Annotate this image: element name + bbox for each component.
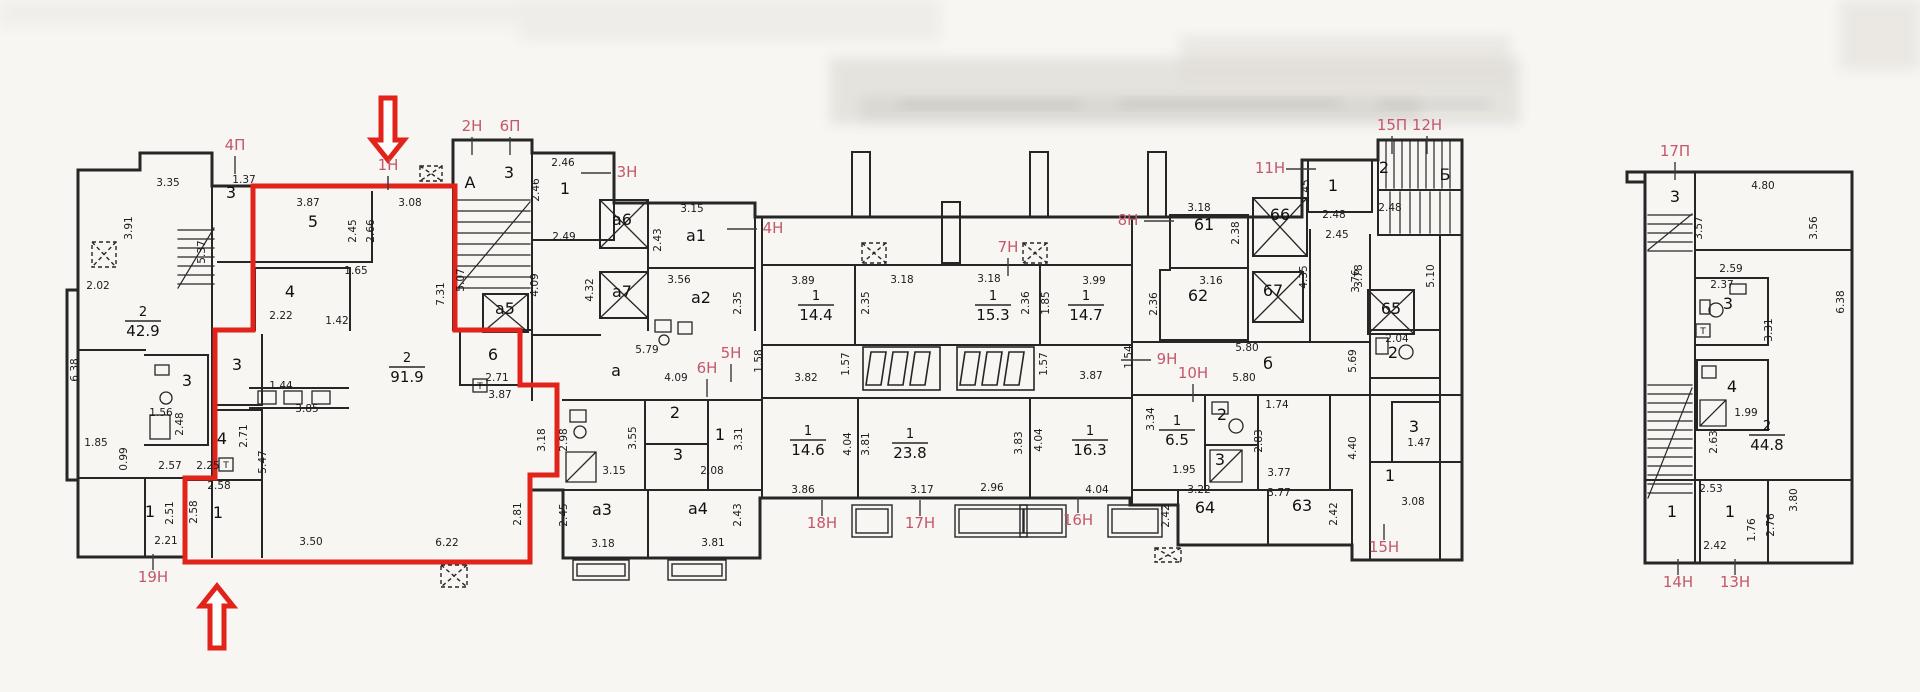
room-number: 4 bbox=[217, 429, 227, 448]
dimension-label: 2.46 bbox=[530, 178, 542, 202]
dimension-label: 2.21 bbox=[154, 535, 177, 547]
dimension-label: 3.31 bbox=[1763, 318, 1775, 341]
dimension-label: 2.35 bbox=[732, 291, 744, 314]
riser-label: Т bbox=[476, 382, 483, 392]
unit-label: 9Н bbox=[1157, 350, 1178, 368]
room-number: 3 bbox=[1409, 417, 1419, 436]
dimension-label: 2.45 bbox=[347, 219, 359, 242]
dimension-label: 2.35 bbox=[860, 291, 872, 314]
dimension-label: 3.83 bbox=[1013, 431, 1025, 454]
dimension-label: 2.59 bbox=[1719, 263, 1742, 275]
unit-label: 17П bbox=[1660, 142, 1690, 160]
dimension-label: 3.17 bbox=[910, 484, 933, 496]
dimension-label: 3.08 bbox=[1401, 496, 1424, 508]
dimension-label: 2.57 bbox=[158, 460, 181, 472]
apartment-area: 44.8 bbox=[1750, 436, 1783, 454]
dimension-label: 2.58 bbox=[207, 480, 230, 492]
unit-label: 5Н bbox=[721, 344, 742, 362]
dimension-label: 3.80 bbox=[1788, 488, 1800, 511]
dimension-label: 4.09 bbox=[529, 273, 541, 296]
unit-label: 15Н bbox=[1369, 538, 1399, 556]
dimension-label: 2.02 bbox=[86, 280, 109, 292]
dimension-label: 3.78 bbox=[1353, 264, 1365, 287]
riser-label: Т bbox=[222, 461, 229, 471]
dimension-label: 3.85 bbox=[295, 403, 318, 415]
dimension-label: 3.87 bbox=[488, 389, 511, 401]
dimension-label: 3.15 bbox=[680, 203, 703, 215]
dimension-label: 1.47 bbox=[1407, 437, 1430, 449]
dimension-label: 5.80 bbox=[1235, 342, 1258, 354]
dimension-label: 1.58 bbox=[753, 349, 765, 372]
dimension-label: 4.09 bbox=[664, 372, 687, 384]
room-number: 3 bbox=[182, 371, 192, 390]
dimension-label: 3.08 bbox=[398, 197, 421, 209]
unit-label: 8Н bbox=[1118, 211, 1139, 229]
dimension-label: 4.04 bbox=[1033, 428, 1045, 452]
dimension-label: 2.38 bbox=[1230, 221, 1242, 244]
dimension-label: 2.96 bbox=[980, 482, 1004, 494]
dimension-label: 1.99 bbox=[1734, 407, 1757, 419]
dimension-label: 3.57 bbox=[1693, 216, 1705, 239]
dimension-label: 0.99 bbox=[118, 447, 130, 470]
dimension-label: 3.87 bbox=[296, 197, 319, 209]
unit-label: 12Н bbox=[1412, 116, 1442, 134]
dimension-label: 2.48 bbox=[1322, 209, 1345, 221]
dimension-label: 3.50 bbox=[299, 536, 322, 548]
dimension-label: 2.42 bbox=[1160, 504, 1172, 527]
dimension-label: 2.71 bbox=[485, 372, 508, 384]
room-number: а4 bbox=[688, 499, 708, 518]
dimension-label: 2.58 bbox=[188, 500, 200, 523]
dimension-label: 2.45 bbox=[1300, 179, 1312, 202]
apartment-number: 1 bbox=[906, 427, 914, 442]
unit-label: 4Н bbox=[763, 219, 784, 237]
dimension-label: 1.85 bbox=[84, 437, 107, 449]
room-number: 1 bbox=[1328, 176, 1338, 195]
room-number: а6 bbox=[612, 210, 632, 229]
room-number: 4 bbox=[285, 282, 295, 301]
room-number: 67 bbox=[1263, 281, 1283, 300]
dimension-label: 2.42 bbox=[1703, 540, 1726, 552]
dimension-label: 3.18 bbox=[591, 538, 614, 550]
dimension-label: 1.54 bbox=[1123, 345, 1135, 369]
dimension-label: 3.15 bbox=[602, 465, 625, 477]
apartment-area: 6.5 bbox=[1165, 431, 1189, 449]
dimension-label: 6.22 bbox=[435, 537, 458, 549]
dimension-label: 5.79 bbox=[635, 344, 658, 356]
dimension-label: 3.89 bbox=[791, 275, 814, 287]
room-number: 1 bbox=[1667, 502, 1677, 521]
dimension-label: 2.49 bbox=[552, 231, 575, 243]
unit-label: 17Н bbox=[905, 514, 935, 532]
room-number: 4 bbox=[1727, 377, 1737, 396]
room-number: 66 bbox=[1270, 205, 1290, 224]
room-number: 3 bbox=[673, 445, 683, 464]
dimension-label: 1.76 bbox=[1746, 518, 1758, 542]
dimension-label: 4.80 bbox=[1751, 180, 1774, 192]
apartment-number: 1 bbox=[989, 289, 997, 304]
unit-label: 2Н bbox=[462, 117, 483, 135]
dimension-label: 3.18 bbox=[536, 428, 548, 451]
apartment-number: 1 bbox=[812, 289, 820, 304]
dimension-label: 2.53 bbox=[1699, 483, 1722, 495]
dimension-label: 2.43 bbox=[732, 503, 744, 526]
dimension-label: 3.18 bbox=[977, 273, 1000, 285]
room-number: Б bbox=[1440, 165, 1451, 184]
dimension-label: 2.66 bbox=[365, 219, 377, 243]
unit-label: 3Н bbox=[617, 163, 638, 181]
room-number: а7 bbox=[612, 282, 632, 301]
room-number: 1 bbox=[145, 502, 155, 521]
dimension-label: 5.47 bbox=[257, 450, 269, 473]
dimension-label: 4.32 bbox=[584, 278, 596, 301]
unit-label: 16Н bbox=[1063, 511, 1093, 529]
unit-label: 13Н bbox=[1720, 573, 1750, 591]
dimension-label: 2.25 bbox=[196, 460, 219, 472]
apartment-area: 14.4 bbox=[799, 306, 832, 324]
dimension-label: 3.77 bbox=[1267, 467, 1290, 479]
dimension-label: 3.55 bbox=[627, 426, 639, 449]
dimension-label: 1.44 bbox=[269, 380, 293, 392]
scanned-floorplan-page: 4П2Н6П1Н3Н4Н5Н6Н7Н8Н9Н10Н11Н15П12Н16Н17Н… bbox=[0, 0, 1920, 692]
dimension-label: 5.37 bbox=[196, 240, 208, 263]
dimension-label: 2.36 bbox=[1148, 292, 1160, 316]
dimension-label: 6.38 bbox=[1835, 290, 1847, 313]
dimension-label: 4.40 bbox=[1347, 436, 1359, 459]
room-number: 1 bbox=[213, 503, 223, 522]
dimension-label: 2.43 bbox=[652, 228, 664, 251]
apartment-area: 14.7 bbox=[1069, 306, 1102, 324]
room-number: 3 bbox=[226, 183, 236, 202]
dimension-label: 2.37 bbox=[1710, 279, 1733, 291]
dimension-label: 3.99 bbox=[1082, 275, 1105, 287]
apartment-number: 1 bbox=[1086, 424, 1094, 439]
room-number: 2 bbox=[1217, 405, 1227, 424]
room-number: 65 bbox=[1381, 299, 1401, 318]
dimension-label: 5.80 bbox=[1232, 372, 1255, 384]
room-number: 3 bbox=[1670, 187, 1680, 206]
room-number: 63 bbox=[1292, 496, 1312, 515]
dimension-label: 2.22 bbox=[269, 310, 292, 322]
dimension-label: 1.57 bbox=[840, 352, 852, 375]
apartment-area: 16.3 bbox=[1073, 441, 1106, 459]
apartment-area: 23.8 bbox=[893, 444, 926, 462]
room-number: 1 bbox=[715, 425, 725, 444]
dimension-label: 3.86 bbox=[791, 484, 815, 496]
dimension-label: 2.48 bbox=[174, 412, 186, 435]
apartment-number: 2 bbox=[139, 305, 147, 320]
apartment-number: 1 bbox=[804, 424, 812, 439]
dimension-label: 1.57 bbox=[1038, 352, 1050, 375]
dimension-label: 2.71 bbox=[238, 424, 250, 447]
room-number: 1 bbox=[560, 179, 570, 198]
dimension-label: 3.34 bbox=[1145, 407, 1157, 431]
room-number: 5 bbox=[308, 212, 318, 231]
dimension-label: 3.81 bbox=[860, 432, 872, 455]
room-number: а bbox=[611, 361, 621, 380]
unit-label: 4П bbox=[225, 136, 246, 154]
unit-label: 6П bbox=[500, 117, 521, 135]
unit-label: 6Н bbox=[697, 359, 718, 377]
apartment-number: 1 bbox=[1173, 414, 1181, 429]
dimension-label: 2.83 bbox=[1253, 429, 1265, 452]
apartment-area: 91.9 bbox=[390, 368, 423, 386]
dimension-label: 7.31 bbox=[435, 282, 447, 305]
apartment-area: 15.3 bbox=[976, 306, 1009, 324]
room-number: б bbox=[1263, 354, 1273, 373]
dimension-label: 2.45 bbox=[1325, 229, 1348, 241]
room-number: 64 bbox=[1195, 498, 1215, 517]
dimension-label: 2.63 bbox=[1708, 430, 1720, 453]
dimension-label: 5.07 bbox=[455, 268, 467, 291]
dimension-label: 3.77 bbox=[1267, 487, 1290, 499]
dimension-label: 2.42 bbox=[1328, 502, 1340, 525]
dimension-label: 2.76 bbox=[1765, 513, 1777, 537]
room-number: 2 bbox=[1379, 158, 1389, 177]
dimension-label: 3.91 bbox=[123, 216, 135, 239]
riser-label: Т bbox=[1699, 327, 1706, 337]
dimension-label: 4.04 bbox=[842, 432, 854, 456]
room-number: 3 bbox=[1723, 294, 1733, 313]
dimension-label: 4.35 bbox=[1298, 265, 1310, 288]
room-number: 2 bbox=[1388, 343, 1398, 362]
dimension-label: 1.42 bbox=[325, 315, 348, 327]
unit-label: 11Н bbox=[1255, 159, 1285, 177]
unit-label: 14Н bbox=[1663, 573, 1693, 591]
dimension-label: 3.35 bbox=[156, 177, 179, 189]
unit-label: 15П bbox=[1377, 116, 1407, 134]
floor-plan: 4П2Н6П1Н3Н4Н5Н6Н7Н8Н9Н10Н11Н15П12Н16Н17Н… bbox=[0, 0, 1920, 692]
room-number: 3 bbox=[504, 163, 514, 182]
dimension-label: 3.82 bbox=[794, 372, 817, 384]
dimension-label: 2.81 bbox=[512, 502, 524, 525]
room-number: 3 bbox=[232, 355, 242, 374]
room-number: а2 bbox=[691, 288, 711, 307]
apartment-number: 1 bbox=[1082, 289, 1090, 304]
dimension-label: 1.95 bbox=[1172, 464, 1195, 476]
dimension-label: 1.74 bbox=[1265, 399, 1289, 411]
dimension-label: 3.81 bbox=[701, 537, 724, 549]
room-number: 1 bbox=[1725, 502, 1735, 521]
room-number: а1 bbox=[686, 226, 706, 245]
unit-label: 18Н bbox=[807, 514, 837, 532]
dimension-label: 5.10 bbox=[1425, 264, 1437, 287]
room-number: 62 bbox=[1188, 286, 1208, 305]
apartment-area: 14.6 bbox=[791, 441, 824, 459]
unit-label: 19Н bbox=[138, 568, 168, 586]
room-number: А bbox=[465, 173, 476, 192]
unit-label: 7Н bbox=[998, 238, 1019, 256]
dimension-label: 2.51 bbox=[164, 501, 176, 524]
dimension-label: 2.98 bbox=[558, 428, 570, 451]
room-number: 6 bbox=[488, 345, 498, 364]
dimension-label: 1.56 bbox=[149, 407, 173, 419]
dimension-label: 1.85 bbox=[1040, 291, 1052, 314]
dimension-label: 3.18 bbox=[1187, 202, 1210, 214]
apartment-area: 42.9 bbox=[126, 322, 159, 340]
dimension-label: 2.48 bbox=[1378, 202, 1401, 214]
unit-label: 10Н bbox=[1178, 364, 1208, 382]
apartment-number: 2 bbox=[1763, 419, 1771, 434]
dimension-label: 4.04 bbox=[1085, 484, 1109, 496]
dimension-label: 5.69 bbox=[1347, 349, 1359, 372]
dimension-label: 3.31 bbox=[733, 427, 745, 450]
dimension-label: 3.22 bbox=[1187, 484, 1210, 496]
room-number: 2 bbox=[670, 403, 680, 422]
dimension-label: 2.36 bbox=[1020, 291, 1032, 315]
dimension-label: 3.18 bbox=[890, 274, 913, 286]
dimension-label: 6.38 bbox=[69, 358, 81, 381]
room-number: 61 bbox=[1194, 215, 1214, 234]
unit-label: 1Н bbox=[378, 156, 399, 174]
dimension-label: 2.45 bbox=[558, 503, 570, 526]
room-number: 1 bbox=[1385, 466, 1395, 485]
dimension-label: 3.56 bbox=[667, 274, 691, 286]
room-number: а3 bbox=[592, 500, 612, 519]
room-number: а5 bbox=[495, 299, 515, 318]
dimension-label: 2.08 bbox=[700, 465, 723, 477]
dimension-label: 3.87 bbox=[1079, 370, 1102, 382]
room-number: 3 bbox=[1215, 450, 1225, 469]
dimension-label: 1.65 bbox=[344, 265, 367, 277]
dimension-label: 2.46 bbox=[551, 157, 575, 169]
apartment-number: 2 bbox=[403, 351, 411, 366]
dimension-label: 3.56 bbox=[1808, 216, 1820, 240]
